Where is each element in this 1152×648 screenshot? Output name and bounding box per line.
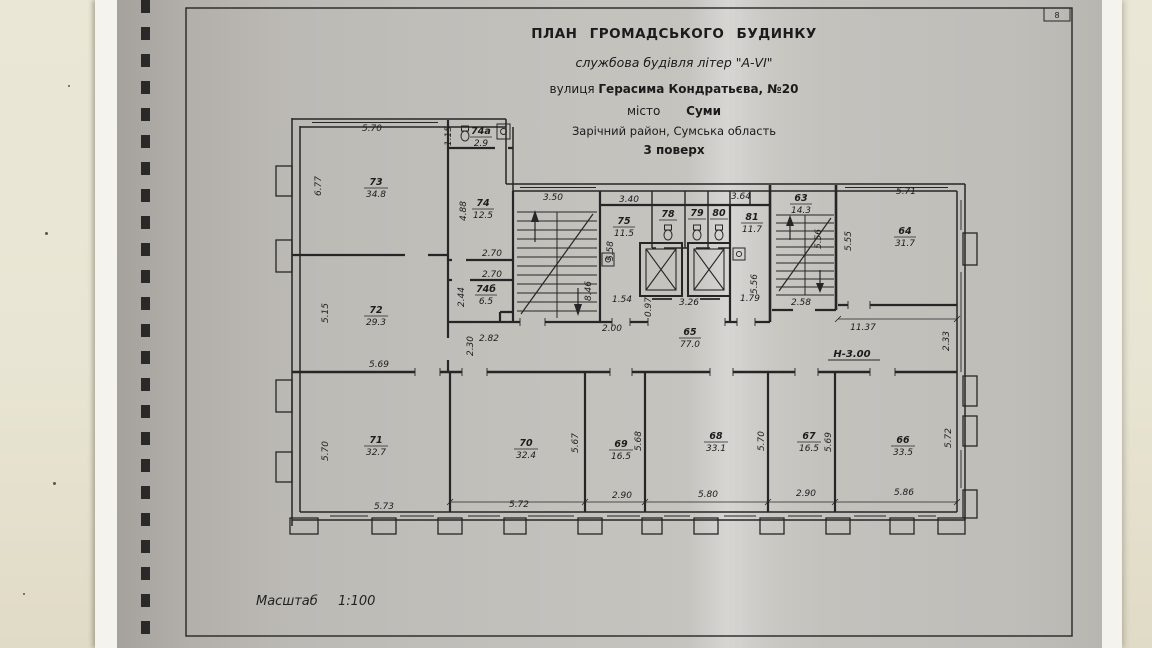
dim-label: 2.90 — [796, 489, 816, 499]
dim-label: 5.70 — [321, 441, 331, 461]
svg-text:11.7: 11.7 — [742, 225, 762, 235]
dim-label: 4.88 — [459, 201, 469, 221]
room-label-73: 7334.8 — [364, 177, 388, 200]
dim-label: 5.73 — [374, 502, 394, 512]
dim-label: 3.26 — [679, 298, 699, 308]
dim-label: 1.54 — [612, 295, 632, 305]
toilet-icon — [664, 225, 672, 240]
toilet-icon — [461, 126, 469, 141]
room-label-63: 6314.3 — [790, 193, 812, 216]
svg-text:33.5: 33.5 — [893, 448, 913, 458]
room-label-64: 6431.7 — [894, 226, 916, 249]
dim-label: 2.82 — [479, 334, 499, 344]
dim-label: 2.58 — [791, 298, 811, 308]
dim-label: 1.79 — [740, 294, 760, 304]
stair-arrow-up — [786, 215, 794, 226]
room-label-74: 7412.5 — [472, 198, 494, 221]
svg-text:75: 75 — [617, 216, 631, 227]
dim-label: 5.56 — [814, 229, 824, 249]
dim-label: 5.58 — [606, 241, 616, 261]
dim-label: 5.72 — [509, 500, 529, 510]
svg-text:77.0: 77.0 — [680, 340, 700, 350]
room-label-65-corridor: 6577.0 — [679, 327, 701, 350]
dim-label: 1.15 — [444, 126, 454, 146]
room-label-68: 6833.1 — [704, 431, 728, 454]
dim-label: 5.69 — [824, 432, 834, 452]
svg-text:79: 79 — [690, 208, 704, 219]
page-corner-number: 8 — [1054, 11, 1059, 20]
room-label-78: 78 — [659, 209, 677, 220]
svg-text:64: 64 — [898, 226, 912, 237]
dim-label: 5.67 — [571, 433, 581, 453]
fixtures — [461, 124, 745, 266]
svg-text:80: 80 — [712, 208, 726, 219]
svg-text:11.5: 11.5 — [614, 229, 634, 239]
dim-label: 5.68 — [634, 431, 644, 451]
room-label-74a: 74а2.9 — [470, 126, 492, 149]
svg-text:70: 70 — [519, 438, 533, 449]
svg-text:32.4: 32.4 — [516, 451, 536, 461]
svg-text:31.7: 31.7 — [895, 239, 915, 249]
dim-label: 2.70 — [482, 270, 502, 280]
room-label-67: 6716.5 — [797, 431, 821, 454]
dim-label: 2.70 — [482, 249, 502, 259]
dim-label: 3.40 — [619, 195, 639, 205]
room-label-80: 80 — [710, 208, 728, 219]
svg-text:71: 71 — [369, 435, 382, 446]
toilet-icon — [715, 225, 723, 240]
toilet-icon — [693, 225, 701, 240]
stair-arrow-down — [816, 283, 824, 293]
svg-text:16.5: 16.5 — [611, 452, 631, 462]
dim-label: 8.46 — [584, 281, 594, 301]
svg-text:69: 69 — [614, 439, 628, 450]
room-label-81: 8111.7 — [741, 212, 763, 235]
svg-text:33.1: 33.1 — [706, 444, 726, 454]
dim-label: 6.77 — [314, 176, 324, 196]
svg-text:74: 74 — [476, 198, 490, 209]
document-border: 8 — [186, 8, 1072, 636]
svg-text:32.7: 32.7 — [366, 448, 386, 458]
dim-label: 3.50 — [543, 193, 563, 203]
room-label-71: 7132.7 — [364, 435, 388, 458]
photo-of-floor-plan-document: ПЛАН ГРОМАДСЬКОГО БУДИНКУ службова будів… — [0, 0, 1152, 648]
svg-text:73: 73 — [369, 177, 383, 188]
sink-icon — [733, 248, 745, 260]
stair-arrow-down — [574, 304, 582, 316]
dim-label: 5.86 — [894, 488, 914, 498]
room-label-70: 7032.4 — [514, 438, 538, 461]
svg-text:67: 67 — [802, 431, 816, 442]
svg-text:6.5: 6.5 — [479, 297, 494, 307]
room-label-69: 6916.5 — [609, 439, 633, 462]
stairwell-63 — [776, 215, 834, 295]
dim-label: 2.33 — [942, 331, 952, 351]
svg-text:14.3: 14.3 — [791, 206, 811, 216]
dim-label: 3.64 — [731, 192, 751, 202]
svg-text:34.8: 34.8 — [366, 190, 386, 200]
svg-text:63: 63 — [794, 193, 808, 204]
svg-text:72: 72 — [369, 305, 383, 316]
room-label-72: 7229.3 — [364, 305, 388, 328]
dim-label: 5.69 — [369, 360, 389, 370]
dim-label: 11.37 — [850, 323, 876, 333]
dim-label: 5.70 — [757, 431, 767, 451]
dim-label: 2.44 — [457, 287, 467, 307]
dim-label: 2.90 — [612, 491, 632, 501]
dim-label: 2.30 — [466, 336, 476, 356]
svg-text:12.5: 12.5 — [473, 211, 493, 221]
svg-text:65: 65 — [683, 327, 697, 338]
dim-label: 5.55 — [844, 231, 854, 251]
svg-text:16.5: 16.5 — [799, 444, 819, 454]
room-label-74b: 74б6.5 — [475, 284, 497, 307]
height-mark: Н-3.00 — [828, 349, 880, 360]
dim-label: 5.72 — [944, 428, 954, 448]
svg-text:81: 81 — [745, 212, 758, 223]
dim-label: 5.15 — [321, 303, 331, 323]
svg-text:29.3: 29.3 — [366, 318, 386, 328]
room-label-66: 6633.5 — [891, 435, 915, 458]
svg-text:2.9: 2.9 — [474, 139, 489, 149]
svg-text:74а: 74а — [471, 126, 491, 137]
svg-text:68: 68 — [709, 431, 723, 442]
dim-label: 2.00 — [602, 324, 622, 334]
floor-plan-drawing: 8 — [0, 0, 1152, 648]
dim-label: 5.80 — [698, 490, 718, 500]
elevator-shafts — [640, 243, 730, 299]
svg-text:78: 78 — [661, 209, 675, 220]
svg-text:Н-3.00: Н-3.00 — [833, 349, 870, 360]
dim-label: 0.97 — [644, 297, 654, 317]
svg-text:66: 66 — [896, 435, 910, 446]
dim-label: 5.70 — [362, 124, 382, 134]
dim-label: 5.71 — [896, 187, 916, 197]
room-label-75: 7511.5 — [613, 216, 635, 239]
dim-label: 5.56 — [750, 274, 760, 294]
room-label-79: 79 — [688, 208, 706, 219]
dimension-labels: 5.70 1.15 6.77 4.88 2.70 2.70 2.44 2.82 … — [314, 124, 954, 512]
svg-text:74б: 74б — [476, 284, 496, 295]
